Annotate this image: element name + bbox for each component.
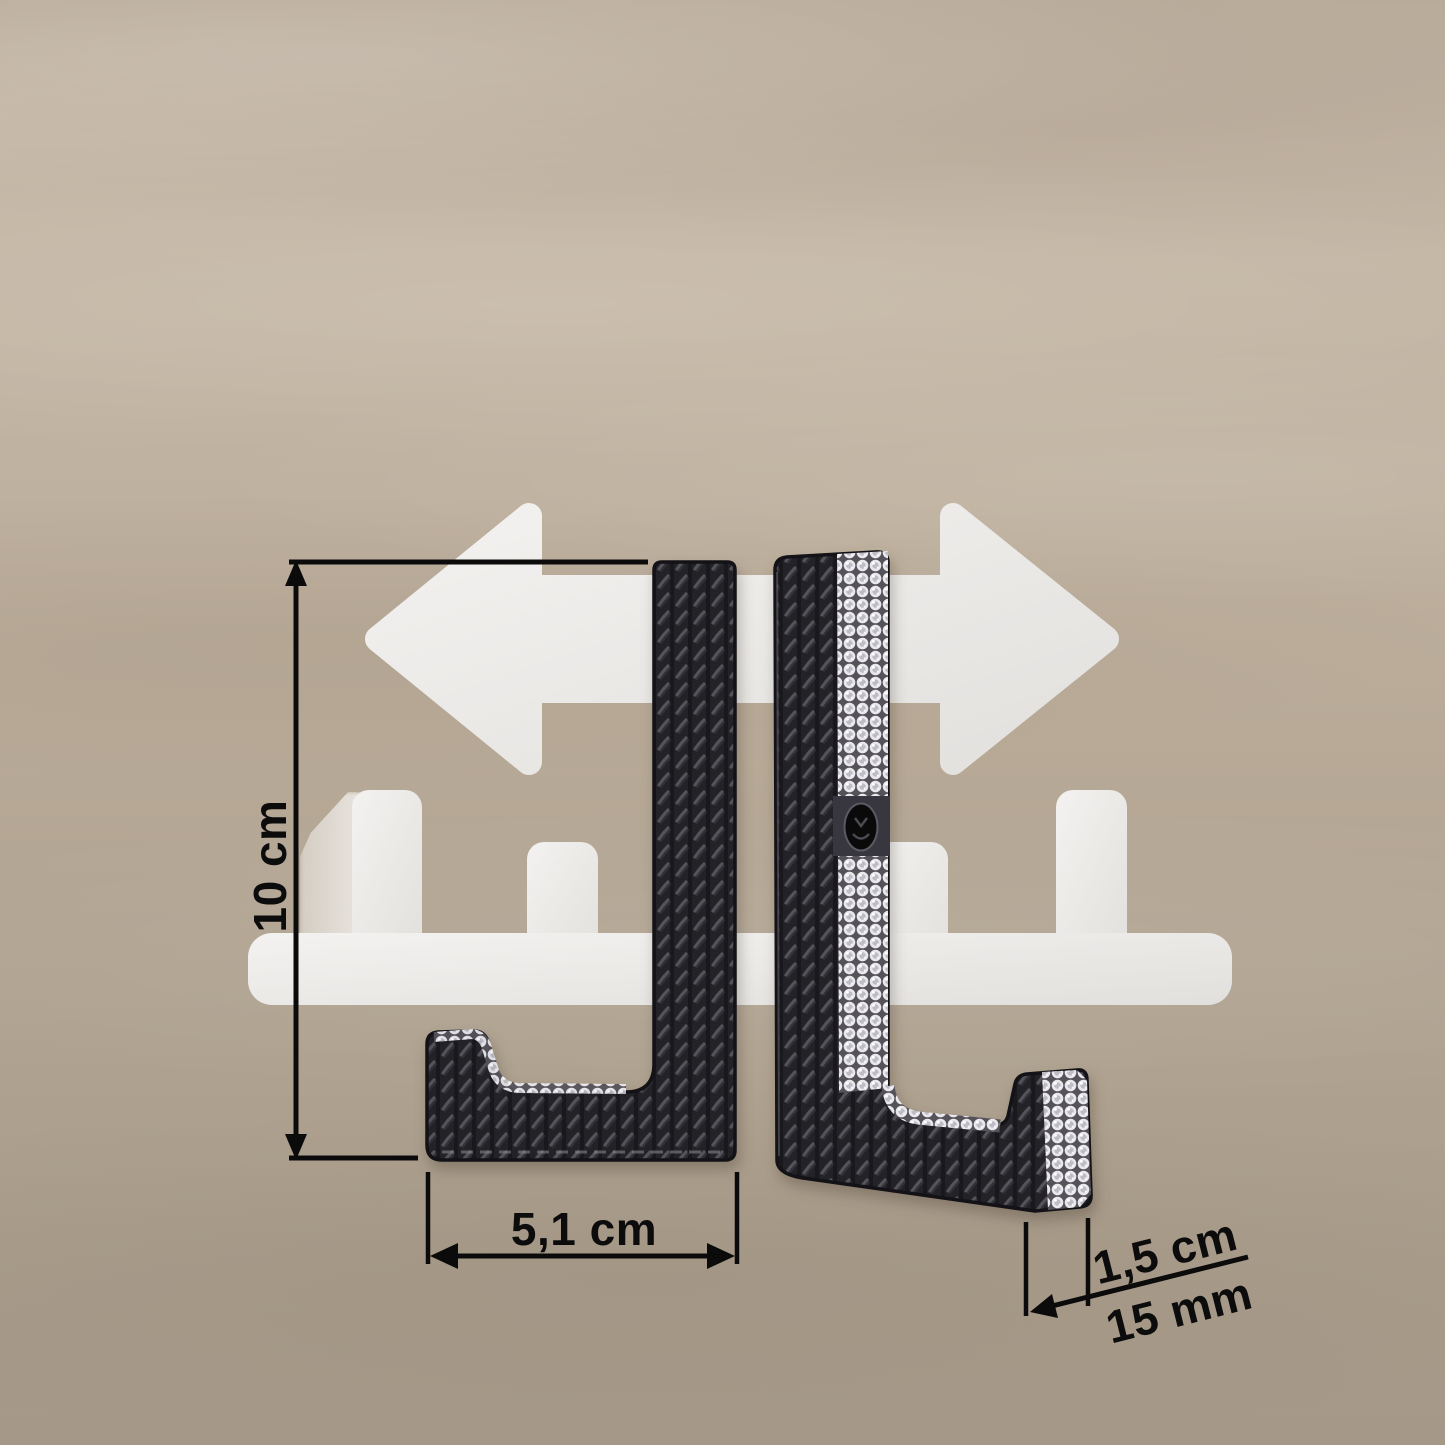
left-hook-body bbox=[427, 562, 735, 1160]
right-hook-rhinestone-curve bbox=[888, 1086, 1000, 1126]
oval-emblem-icon bbox=[833, 796, 890, 856]
right-hook-rhinestone-lip-face bbox=[1042, 1070, 1091, 1210]
door-hook-front-image bbox=[422, 554, 742, 1170]
height-dimension-label: 10 cm bbox=[243, 800, 297, 933]
door-hook-side-rhinestone-image bbox=[765, 546, 1095, 1228]
right-hook-body bbox=[775, 552, 1091, 1211]
width-dimension-label: 5,1 cm bbox=[511, 1202, 657, 1256]
product-dimension-image: 10 cm 5,1 cm 1,5 cm 15 mm bbox=[0, 0, 1445, 1445]
